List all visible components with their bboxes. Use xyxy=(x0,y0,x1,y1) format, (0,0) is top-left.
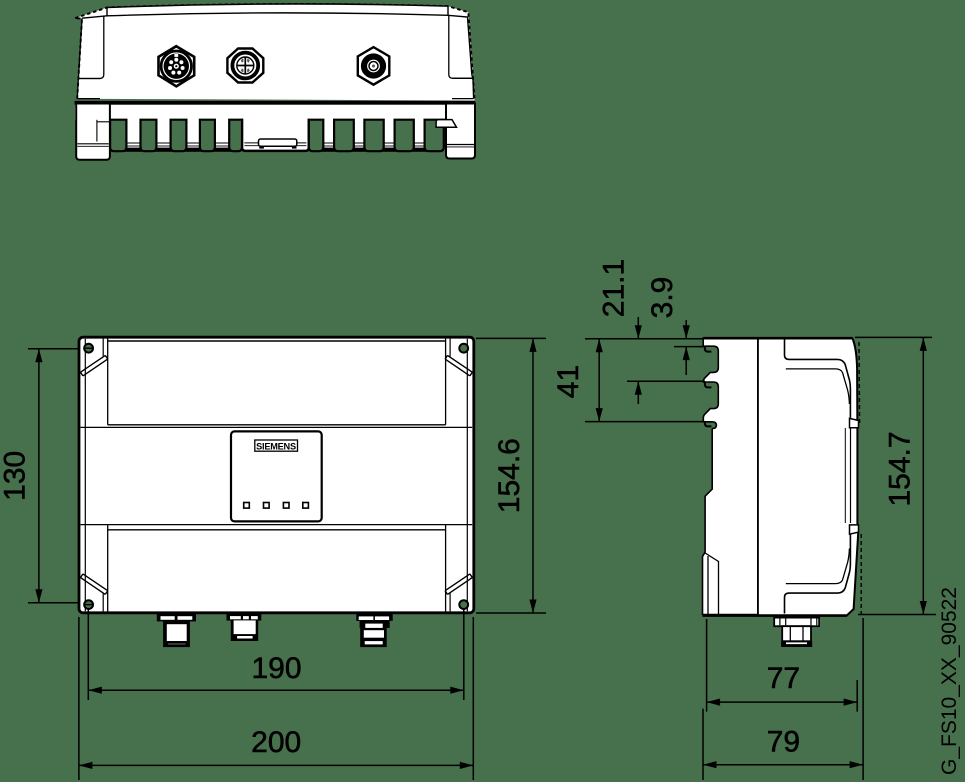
svg-text:154.6: 154.6 xyxy=(493,438,526,513)
svg-text:200: 200 xyxy=(251,726,301,759)
svg-text:SIEMENS: SIEMENS xyxy=(256,442,296,452)
svg-text:130: 130 xyxy=(0,451,32,501)
svg-text:21.1: 21.1 xyxy=(598,259,631,317)
svg-text:3.9: 3.9 xyxy=(646,277,679,319)
svg-text:77: 77 xyxy=(767,662,800,695)
svg-text:190: 190 xyxy=(251,652,301,685)
svg-text:154.7: 154.7 xyxy=(884,431,917,506)
svg-text:79: 79 xyxy=(767,725,800,758)
svg-text:G_FS10_XX_90522: G_FS10_XX_90522 xyxy=(938,587,961,775)
svg-text:41: 41 xyxy=(552,365,585,398)
